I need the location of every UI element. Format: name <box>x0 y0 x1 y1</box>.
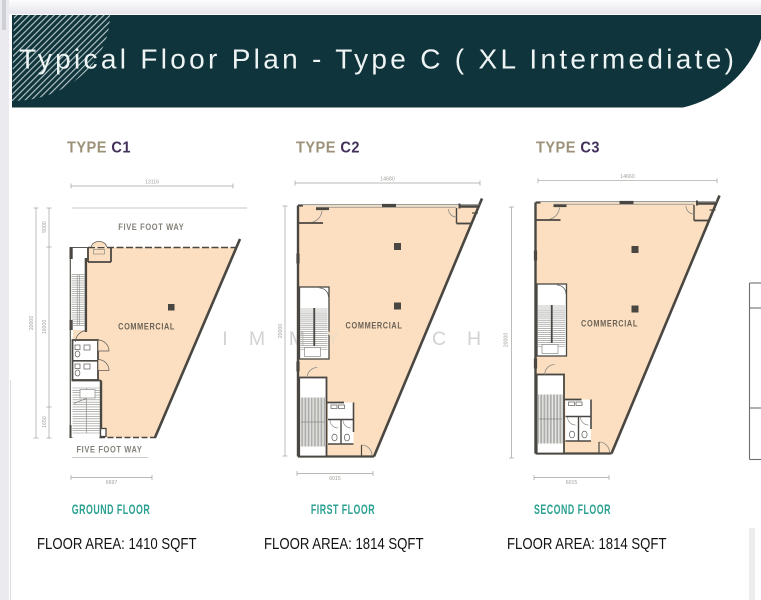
svg-text:6015: 6015 <box>566 480 578 486</box>
svg-text:C: C <box>432 328 446 350</box>
svg-text:FIVE FOOT WAY: FIVE FOOT WAY <box>76 444 142 455</box>
svg-text:14660: 14660 <box>620 174 635 180</box>
svg-text:6697: 6697 <box>106 480 118 486</box>
svg-text:20000: 20000 <box>29 316 35 331</box>
svg-text:Typical Floor Plan - Type C (: Typical Floor Plan - Type C ( XL Interme… <box>19 44 737 75</box>
svg-text:M: M <box>249 328 265 350</box>
svg-text:FLOOR AREA: 1814 SQFT: FLOOR AREA: 1814 SQFT <box>264 536 424 553</box>
svg-text:13116: 13116 <box>145 180 159 186</box>
svg-text:SECOND FLOOR: SECOND FLOOR <box>534 502 611 518</box>
svg-text:FLOOR AREA: 1814 SQFT: FLOOR AREA: 1814 SQFT <box>507 536 667 553</box>
svg-text:I: I <box>222 328 227 350</box>
svg-text:FIRST FLOOR: FIRST FLOOR <box>311 502 375 518</box>
svg-text:14680: 14680 <box>380 177 395 183</box>
svg-text:H: H <box>467 328 481 350</box>
svg-text:Y: Y <box>326 328 339 350</box>
svg-text:TYPE C2: TYPE C2 <box>296 139 360 157</box>
svg-text:GROUND FLOOR: GROUND FLOOR <box>72 502 150 518</box>
svg-text:5000: 5000 <box>42 221 48 233</box>
svg-text:M: M <box>289 328 305 350</box>
svg-text:COMMERCIAL: COMMERCIAL <box>581 318 638 329</box>
svg-text:20000: 20000 <box>278 324 284 339</box>
svg-text:1650: 1650 <box>42 416 48 428</box>
svg-text:COMMERCIAL: COMMERCIAL <box>346 320 403 331</box>
svg-text:TYPE C3: TYPE C3 <box>536 139 600 157</box>
svg-text:FLOOR AREA: 1410 SQFT: FLOOR AREA: 1410 SQFT <box>37 536 197 553</box>
svg-text:TYPE C1: TYPE C1 <box>67 139 131 157</box>
svg-text:COMMERCIAL: COMMERCIAL <box>118 320 175 331</box>
svg-text:16000: 16000 <box>42 320 48 335</box>
svg-text:20000: 20000 <box>504 333 510 348</box>
svg-text:6015: 6015 <box>329 476 341 482</box>
svg-text:FIVE FOOT WAY: FIVE FOOT WAY <box>118 221 184 232</box>
